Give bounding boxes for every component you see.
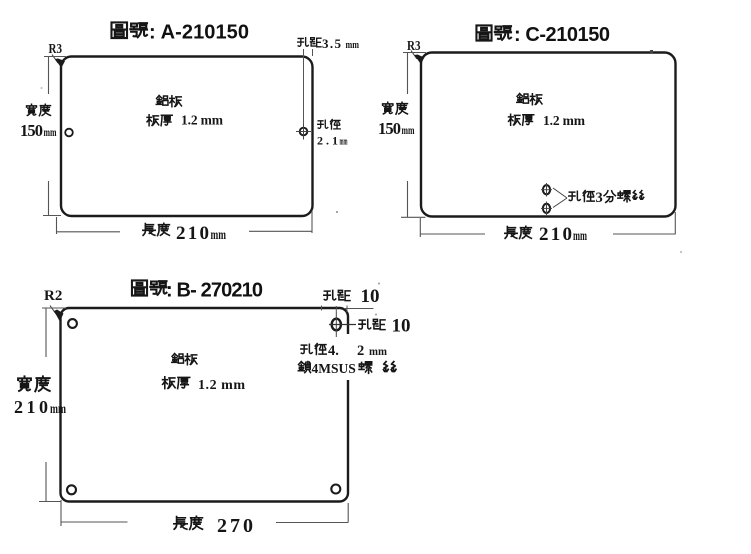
svg-text:: A-210150: : A-210150 [149,22,249,44]
svg-text:mm: mm [573,229,587,244]
svg-text:mm: mm [44,125,57,139]
svg-text:210: 210 [14,397,48,417]
svg-text:270: 270 [217,515,253,537]
svg-text:1.2 mm: 1.2 mm [181,113,224,128]
svg-text:: C-210150: : C-210150 [514,24,610,46]
svg-text:R3: R3 [407,39,421,54]
svg-text:150: 150 [378,119,401,138]
svg-text:mm: mm [402,123,415,137]
svg-text:1.2 mm: 1.2 mm [198,378,245,393]
svg-text:10: 10 [392,316,411,337]
svg-text:mm: mm [211,228,227,243]
svg-text:2.1: 2.1 [317,134,338,148]
svg-text:: B- 270210: : B- 270210 [166,280,263,302]
svg-text:210: 210 [539,224,572,245]
svg-text:mm: mm [369,346,387,358]
svg-text:10: 10 [361,286,380,307]
svg-text:210: 210 [176,223,209,244]
svg-text:4MSUS: 4MSUS [312,361,356,376]
svg-text:R3: R3 [49,42,63,57]
svg-text:150: 150 [20,121,43,140]
svg-text:mm: mm [346,39,360,51]
svg-text:mm: mm [340,137,348,148]
svg-text:R2: R2 [44,288,62,304]
svg-text:4.: 4. [328,343,339,359]
svg-text:2: 2 [357,343,364,359]
svg-text:3.5: 3.5 [322,36,342,51]
svg-text:1.2 mm: 1.2 mm [543,113,586,128]
svg-text:mm: mm [50,401,67,416]
svg-text:3: 3 [596,190,603,206]
